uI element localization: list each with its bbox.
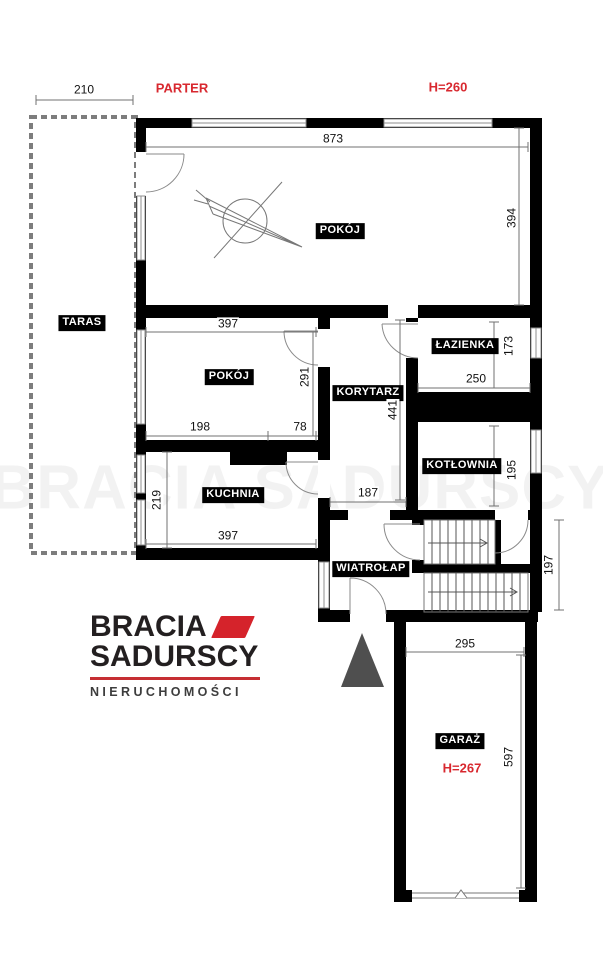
dim-lazienka-width: 250 <box>465 372 487 385</box>
dim-pokoj-small-seg2: 78 <box>292 420 307 433</box>
floor-title: PARTER <box>156 81 208 96</box>
dim-korytarz-length: 441 <box>386 399 399 421</box>
ceiling-height-label: H=260 <box>429 80 468 95</box>
logo-divider <box>90 677 260 680</box>
north-arrow-icon <box>341 633 384 687</box>
dim-pokoj-small-width: 397 <box>217 317 239 330</box>
dim-pokoj-small-seg1: 198 <box>189 420 211 433</box>
garage-door <box>412 890 519 898</box>
logo-word-sadurscy: SADURSCY <box>90 642 280 672</box>
dim-stairs-depth: 197 <box>542 554 555 576</box>
dim-garaz-depth: 597 <box>502 746 515 768</box>
dimension-lines <box>36 95 564 888</box>
dim-pokoj-main-depth: 394 <box>505 207 518 229</box>
dim-kuchnia-depth: 219 <box>150 489 163 511</box>
room-label-lazienka: ŁAZIENKA <box>432 338 499 354</box>
dim-garaz-width: 295 <box>454 637 476 650</box>
dim-pokoj-main-width: 873 <box>322 132 344 145</box>
dim-kuchnia-width: 397 <box>217 529 239 542</box>
dim-kotlownia-depth: 195 <box>505 459 518 481</box>
room-label-pokoj-small: POKÓJ <box>205 369 254 385</box>
compass-icon <box>194 182 302 258</box>
room-label-garaz: GARAŻ <box>435 733 484 749</box>
room-label-taras: TARAS <box>58 315 105 331</box>
dim-korytarz-width: 187 <box>357 486 379 499</box>
agency-logo: BRACIA SADURSCY NIERUCHOMOŚCI <box>90 612 280 699</box>
logo-subtitle: NIERUCHOMOŚCI <box>90 685 280 699</box>
garage-height-label: H=267 <box>443 761 482 776</box>
room-label-wiatrolap: WIATROŁAP <box>332 561 409 577</box>
dim-lazienka-depth: 173 <box>502 335 515 357</box>
room-label-kotlownia: KOTŁOWNIA <box>422 458 501 474</box>
room-label-kuchnia: KUCHNIA <box>202 487 264 503</box>
terrace-outline <box>31 117 136 553</box>
dim-taras-width: 210 <box>73 83 95 96</box>
room-label-pokoj-main: POKÓJ <box>316 223 365 239</box>
dim-pokoj-small-depth: 291 <box>298 366 311 388</box>
logo-flag-icon <box>211 616 255 638</box>
floor-plan-canvas: BRACIA SADURSCY <box>0 0 603 960</box>
logo-word-bracia: BRACIA <box>90 612 207 642</box>
